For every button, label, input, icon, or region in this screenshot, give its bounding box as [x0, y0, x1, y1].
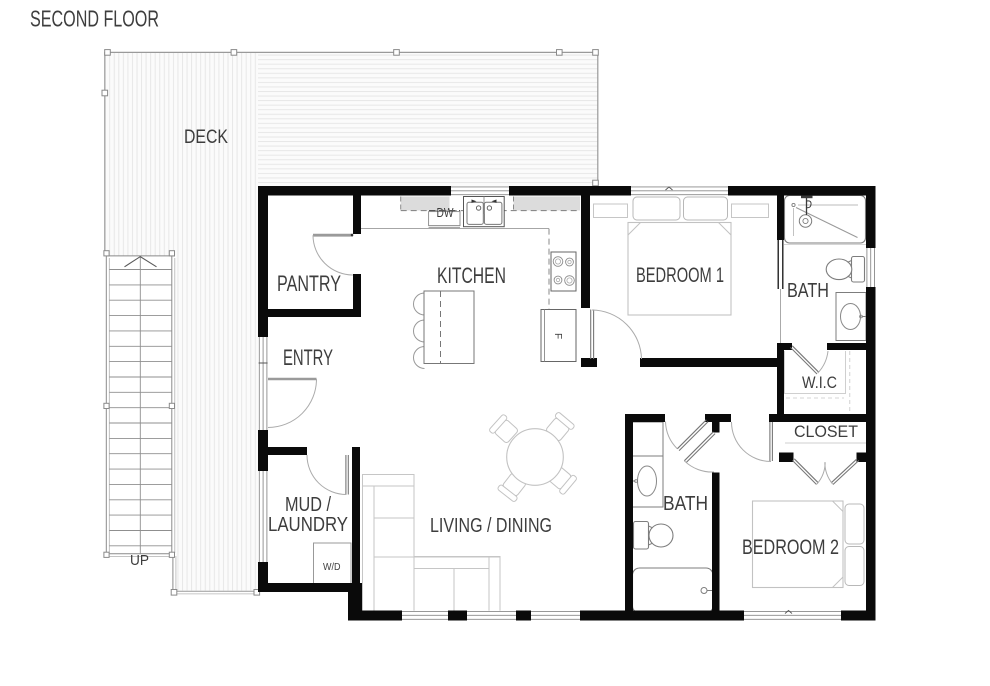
svg-text:SECOND FLOOR: SECOND FLOOR	[30, 6, 159, 32]
svg-text:PANTRY: PANTRY	[277, 271, 341, 296]
svg-text:UP: UP	[130, 552, 149, 569]
svg-text:LIVING / DINING: LIVING / DINING	[430, 515, 552, 537]
svg-text:BATH: BATH	[663, 493, 708, 515]
svg-text:BATH: BATH	[787, 280, 829, 302]
svg-text:DECK: DECK	[184, 127, 228, 148]
svg-text:KITCHEN: KITCHEN	[437, 263, 506, 288]
svg-text:CLOSET: CLOSET	[794, 422, 858, 441]
svg-text:LAUNDRY: LAUNDRY	[268, 514, 348, 536]
svg-text:W/D: W/D	[323, 562, 341, 573]
svg-text:ENTRY: ENTRY	[283, 345, 333, 370]
svg-text:W.I.C: W.I.C	[802, 373, 837, 392]
svg-text:MUD /: MUD /	[285, 494, 331, 516]
svg-text:BEDROOM 1: BEDROOM 1	[636, 264, 724, 287]
svg-text:DW: DW	[437, 205, 455, 220]
svg-text:F: F	[552, 333, 563, 339]
svg-text:BEDROOM 2: BEDROOM 2	[742, 536, 839, 559]
